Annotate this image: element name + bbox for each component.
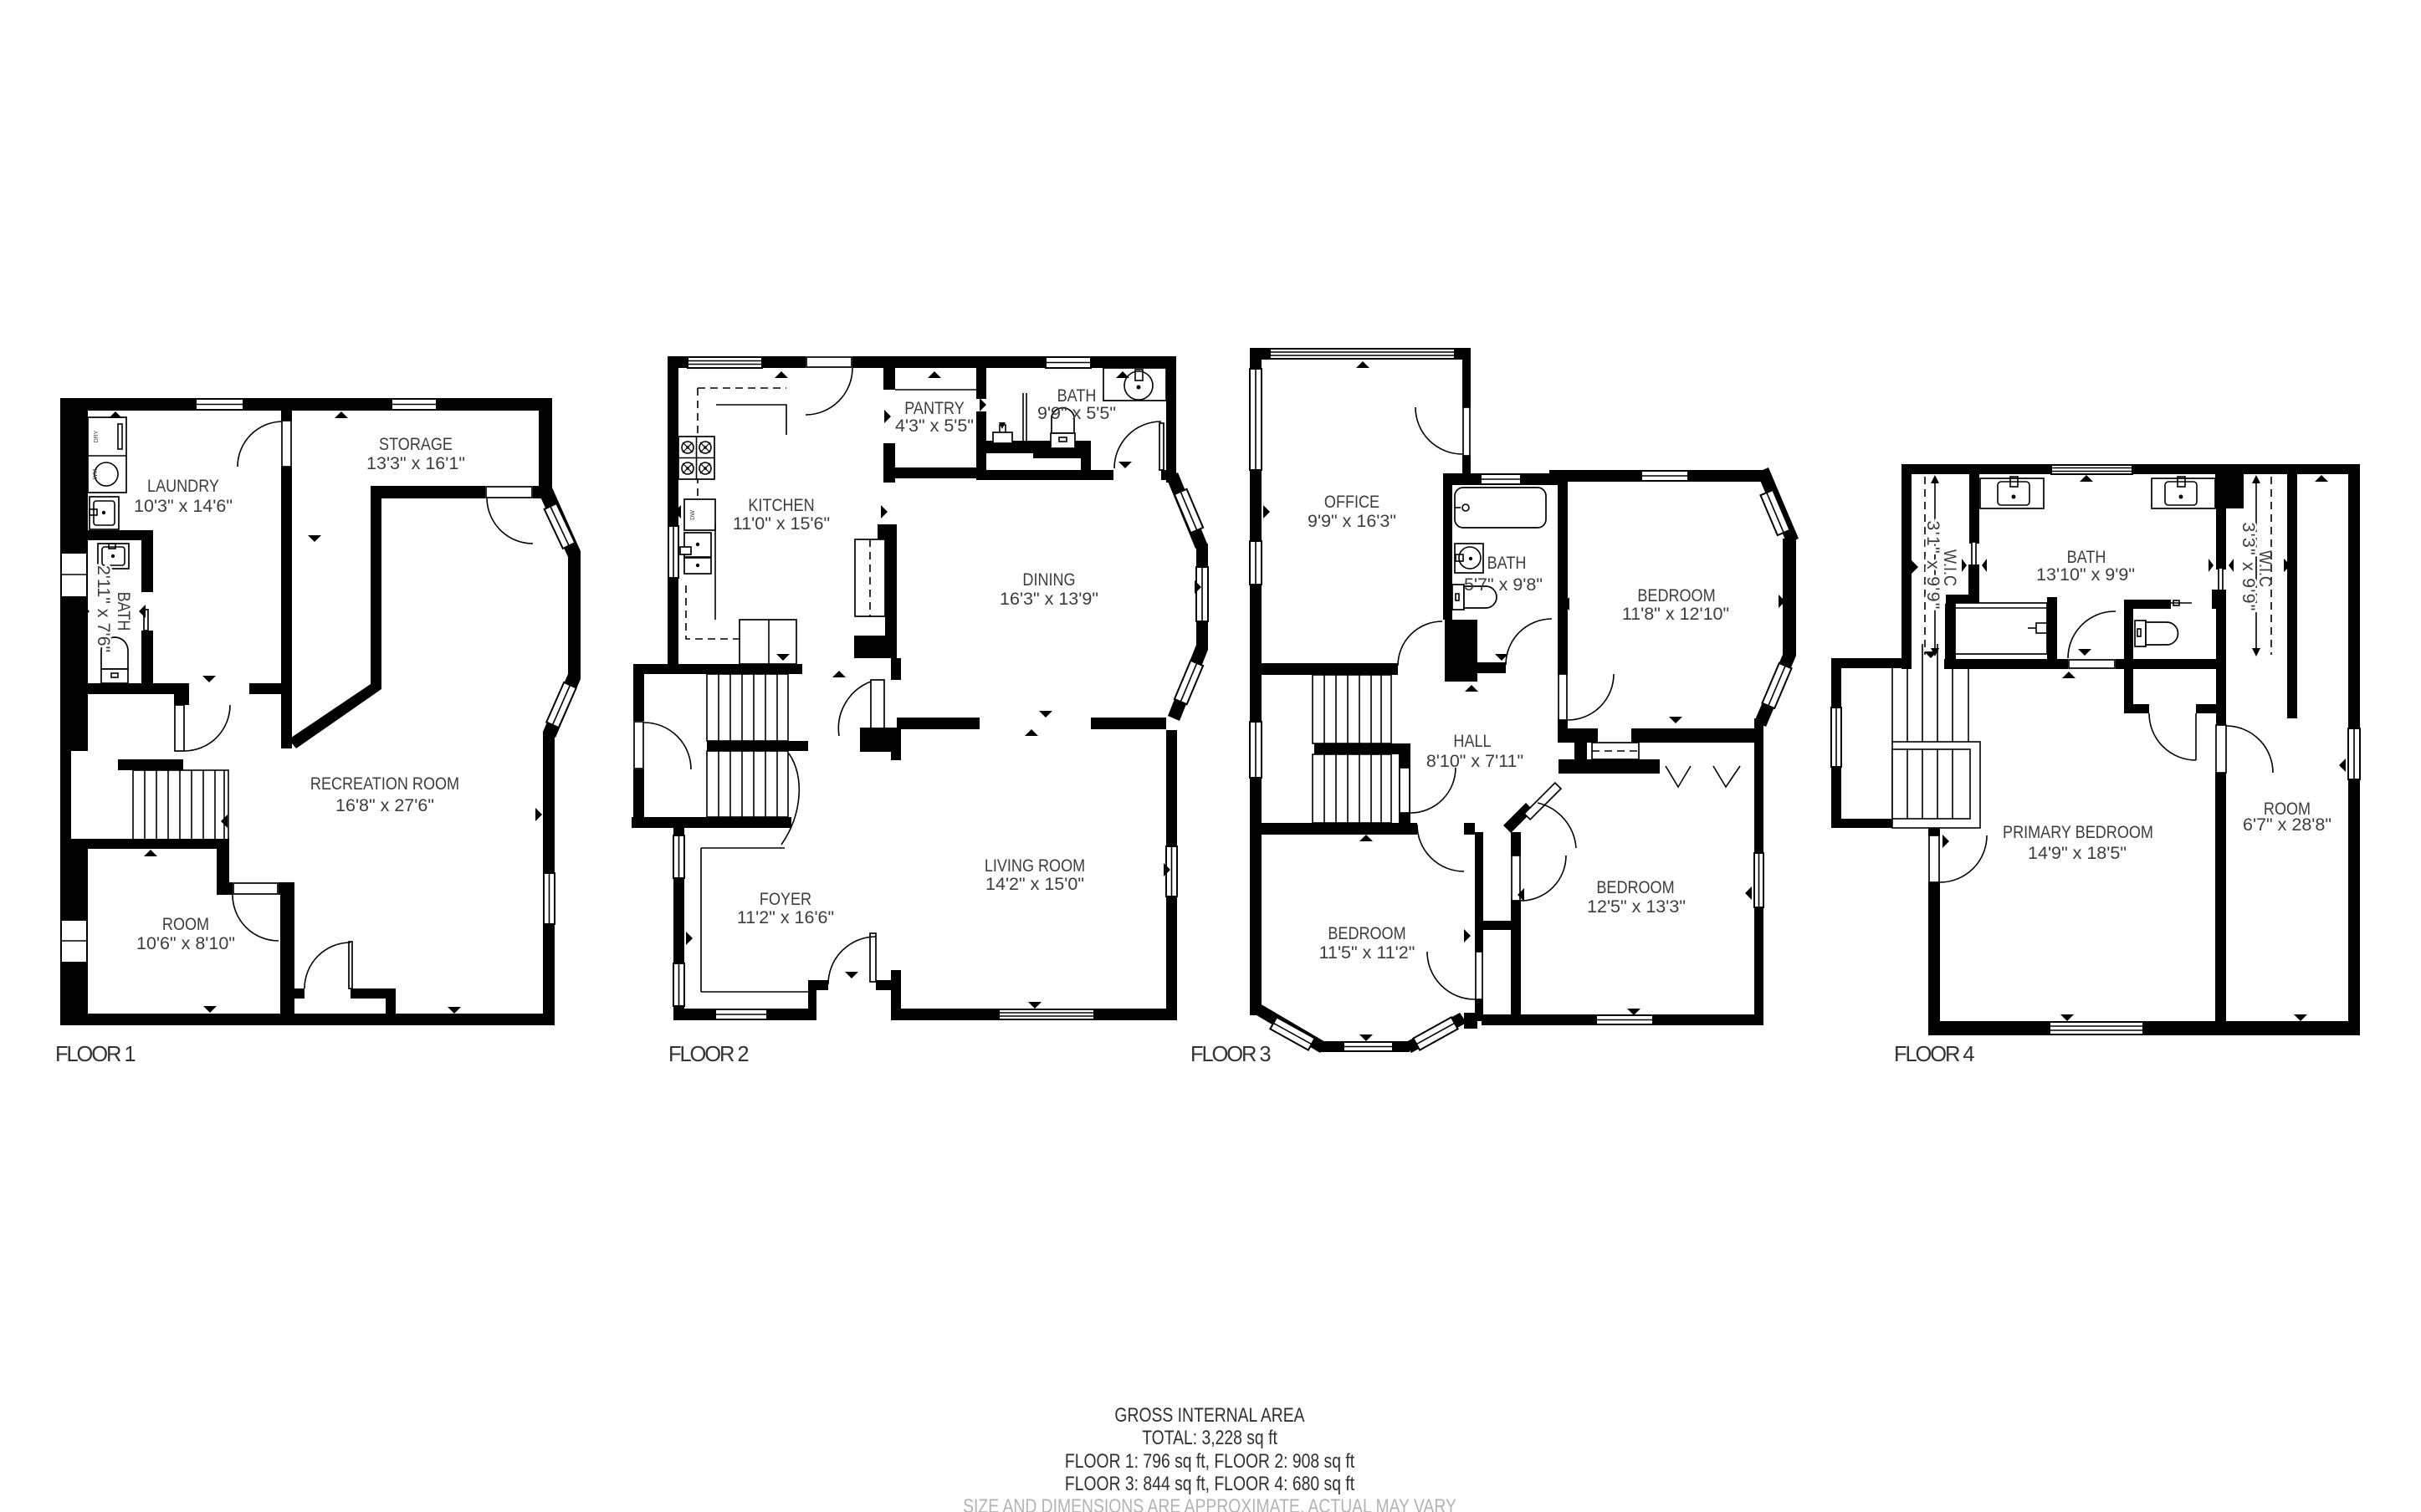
svg-text:BEDROOM: BEDROOM xyxy=(1328,924,1405,944)
svg-text:12'5" x 13'3": 12'5" x 13'3" xyxy=(1587,896,1686,917)
svg-text:FLOOR 4: FLOOR 4 xyxy=(1894,1043,1974,1066)
svg-text:LIVING ROOM: LIVING ROOM xyxy=(985,856,1085,876)
svg-text:3'1" x 9'9": 3'1" x 9'9" xyxy=(1923,520,1943,610)
svg-text:LAUNDRY: LAUNDRY xyxy=(147,477,219,497)
svg-text:14'2" x 15'0": 14'2" x 15'0" xyxy=(985,874,1084,894)
svg-text:11'5" x 11'2": 11'5" x 11'2" xyxy=(1319,942,1415,963)
svg-text:6'7" x 28'8": 6'7" x 28'8" xyxy=(2243,815,2331,835)
svg-text:4'3" x 5'5": 4'3" x 5'5" xyxy=(895,416,974,436)
svg-text:PRIMARY BEDROOM: PRIMARY BEDROOM xyxy=(2003,823,2153,843)
svg-text:FLOOR 1: 796 sq ft, FLOOR 2: 9: FLOOR 1: 796 sq ft, FLOOR 2: 908 sq ft xyxy=(1065,1449,1354,1473)
svg-text:DRY: DRY xyxy=(94,430,100,442)
svg-text:FLOOR 2: FLOOR 2 xyxy=(668,1043,748,1066)
svg-text:5'7" x 9'8": 5'7" x 9'8" xyxy=(1464,575,1543,595)
svg-text:3'3" x 9'9": 3'3" x 9'9" xyxy=(2239,522,2259,611)
svg-text:9'9" x 5'5": 9'9" x 5'5" xyxy=(1037,403,1116,423)
svg-text:OFFICE: OFFICE xyxy=(1324,493,1379,513)
svg-text:2'11" x 7'6": 2'11" x 7'6" xyxy=(94,565,114,652)
svg-text:BEDROOM: BEDROOM xyxy=(1637,586,1715,606)
svg-text:HALL: HALL xyxy=(1453,732,1491,752)
svg-text:DW: DW xyxy=(690,510,696,520)
svg-text:GROSS INTERNAL AREA: GROSS INTERNAL AREA xyxy=(1114,1403,1304,1427)
svg-text:13'10" x 9'9": 13'10" x 9'9" xyxy=(2036,564,2135,585)
svg-text:10'6" x 8'10": 10'6" x 8'10" xyxy=(136,933,235,953)
svg-text:RECREATION ROOM: RECREATION ROOM xyxy=(310,774,459,794)
svg-text:TOTAL: 3,228 sq ft: TOTAL: 3,228 sq ft xyxy=(1142,1426,1277,1449)
svg-text:ROOM: ROOM xyxy=(162,915,209,935)
svg-text:8'10" x 7'11": 8'10" x 7'11" xyxy=(1426,751,1523,771)
svg-text:STORAGE: STORAGE xyxy=(379,435,453,455)
svg-text:BEDROOM: BEDROOM xyxy=(1596,878,1674,898)
svg-text:9'9" x 16'3": 9'9" x 16'3" xyxy=(1308,511,1396,531)
svg-text:10'3" x 14'6": 10'3" x 14'6" xyxy=(134,496,233,516)
svg-text:11'0" x 15'6": 11'0" x 15'6" xyxy=(733,513,830,534)
svg-text:11'2" x 16'6": 11'2" x 16'6" xyxy=(737,907,834,927)
svg-text:11'8" x 12'10": 11'8" x 12'10" xyxy=(1622,604,1729,624)
svg-text:FOYER: FOYER xyxy=(760,890,811,910)
svg-text:16'3" x 13'9": 16'3" x 13'9" xyxy=(1000,589,1098,609)
svg-text:BATH: BATH xyxy=(1487,554,1527,574)
svg-text:DINING: DINING xyxy=(1022,570,1075,590)
svg-text:16'8" x 27'6": 16'8" x 27'6" xyxy=(335,795,434,815)
svg-text:13'3" x 16'1": 13'3" x 16'1" xyxy=(366,453,465,473)
svg-text:FLOOR 3: FLOOR 3 xyxy=(1190,1043,1271,1066)
svg-text:BATH: BATH xyxy=(114,592,134,631)
svg-text:SIZE AND DIMENSIONS ARE APPROX: SIZE AND DIMENSIONS ARE APPROXIMATE, ACT… xyxy=(963,1494,1456,1512)
svg-text:14'9" x 18'5": 14'9" x 18'5" xyxy=(2028,843,2127,863)
svg-text:WM: WM xyxy=(93,469,99,480)
svg-text:KITCHEN: KITCHEN xyxy=(748,496,814,516)
svg-text:FLOOR 3: 844 sq ft, FLOOR 4: 6: FLOOR 3: 844 sq ft, FLOOR 4: 680 sq ft xyxy=(1065,1472,1354,1495)
svg-text:FLOOR 1: FLOOR 1 xyxy=(55,1043,135,1066)
